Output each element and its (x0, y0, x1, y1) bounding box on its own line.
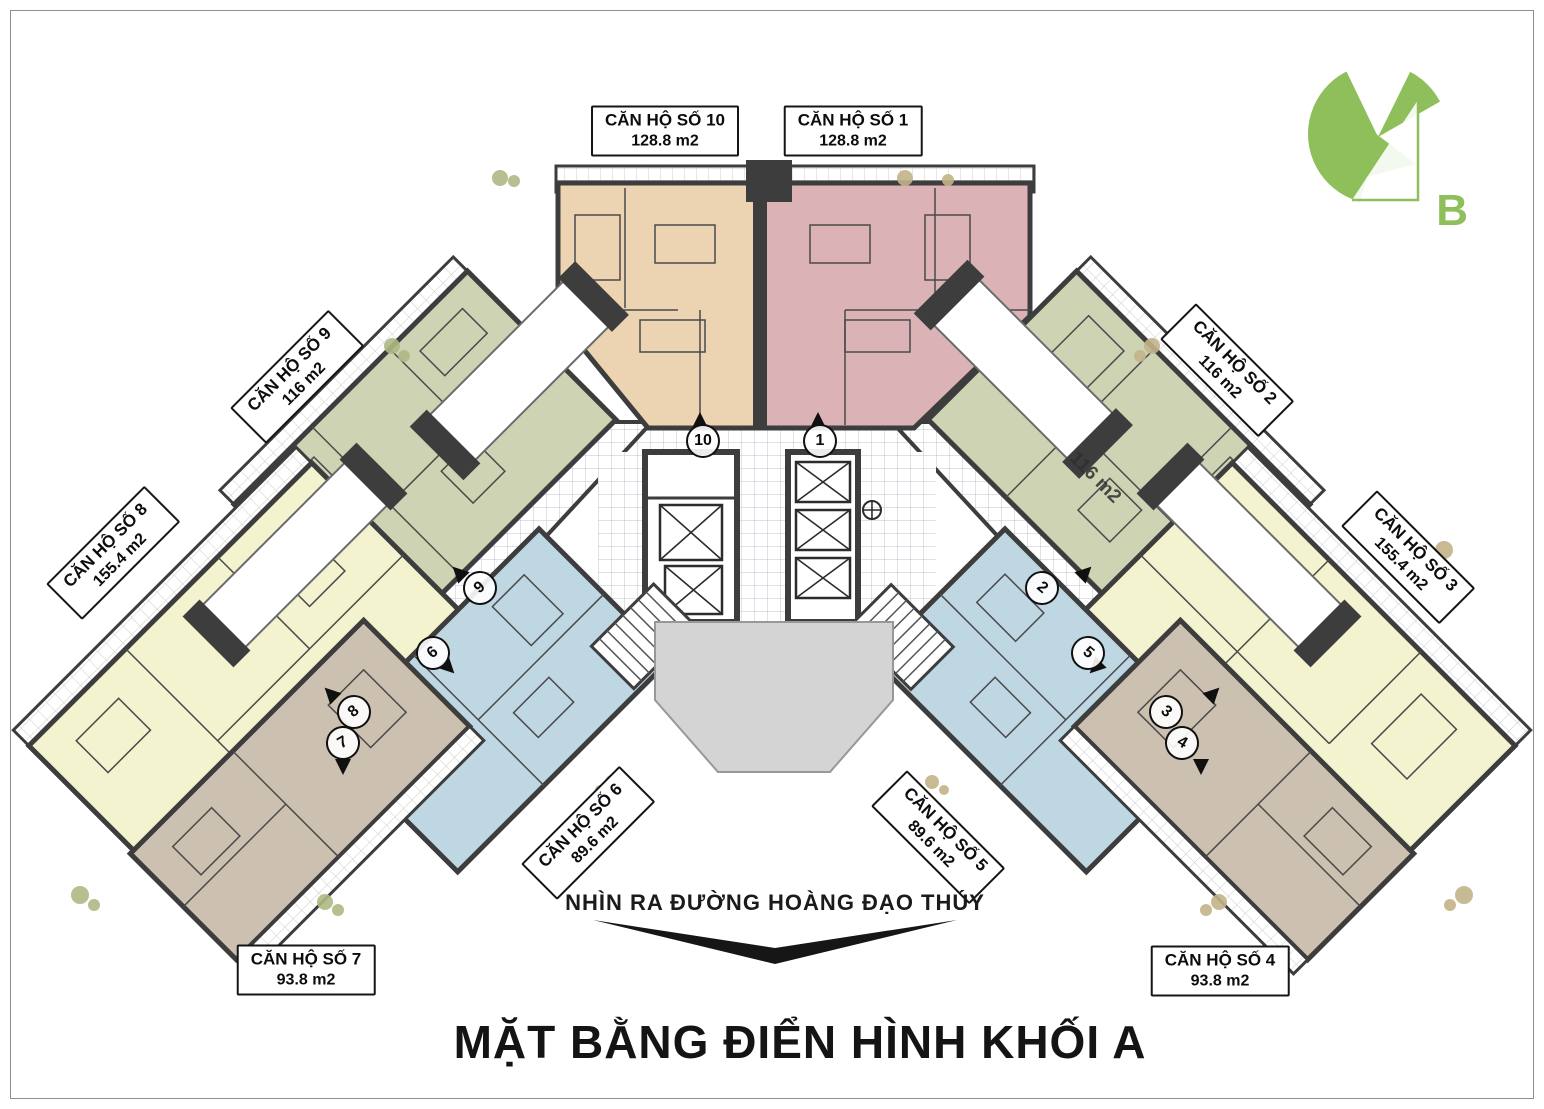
apartment-area: 93.8 m2 (1165, 972, 1276, 993)
apartment-label-7: CĂN HỘ SỐ 7 93.8 m2 (237, 945, 376, 996)
brand-logo: B (1300, 52, 1470, 242)
floor-plan-sheet: CĂN HỘ SỐ 10 128.8 m2 CĂN HỘ SỐ 1 128.8 … (0, 0, 1544, 1109)
apartment-name: CĂN HỘ SỐ 7 (251, 949, 362, 971)
apartment-name: CĂN HỘ SỐ 1 (798, 110, 909, 132)
unit-marker-10: 10 (686, 424, 720, 458)
elevator-shaft (796, 462, 850, 598)
apartment-name: CĂN HỘ SỐ 4 (1165, 950, 1276, 972)
street-note: NHÌN RA ĐƯỜNG HOÀNG ĐẠO THÚY (565, 890, 985, 916)
street-direction-arrow (593, 920, 957, 964)
logo-letter: B (1436, 186, 1468, 236)
apartment-label-4: CĂN HỘ SỐ 4 93.8 m2 (1151, 946, 1290, 997)
apartment-area: 128.8 m2 (605, 132, 725, 153)
apartment-label-1: CĂN HỘ SỐ 1 128.8 m2 (784, 106, 923, 157)
apartment-name: CĂN HỘ SỐ 10 (605, 110, 725, 132)
apartment-label-10: CĂN HỘ SỐ 10 128.8 m2 (591, 106, 739, 157)
page-title: MẶT BẰNG ĐIỂN HÌNH KHỐI A (454, 1015, 1147, 1069)
atrium-void (655, 622, 893, 772)
unit-marker-1: 1 (803, 424, 837, 458)
apartment-area: 93.8 m2 (251, 971, 362, 992)
apartment-area: 128.8 m2 (798, 132, 909, 153)
